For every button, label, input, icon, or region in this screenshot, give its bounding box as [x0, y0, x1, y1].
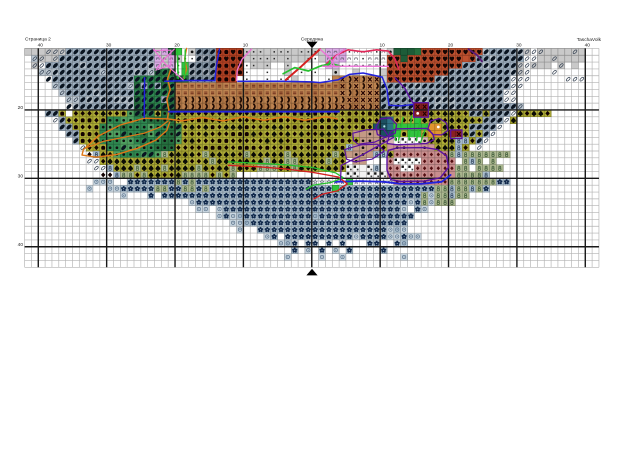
- svg-text:40: 40: [18, 242, 24, 248]
- svg-text:10: 10: [243, 43, 249, 49]
- svg-text:20: 20: [174, 43, 180, 49]
- svg-text:30: 30: [106, 43, 112, 49]
- svg-text:TaschaVolk: TaschaVolk: [577, 37, 602, 43]
- svg-text:20: 20: [18, 105, 24, 111]
- svg-text:20: 20: [448, 43, 454, 49]
- svg-text:Страница 2: Страница 2: [25, 37, 51, 43]
- svg-text:10: 10: [380, 43, 386, 49]
- svg-text:30: 30: [18, 173, 24, 179]
- svg-text:40: 40: [38, 43, 44, 49]
- svg-text:30: 30: [516, 43, 522, 49]
- svg-text:40: 40: [585, 43, 591, 49]
